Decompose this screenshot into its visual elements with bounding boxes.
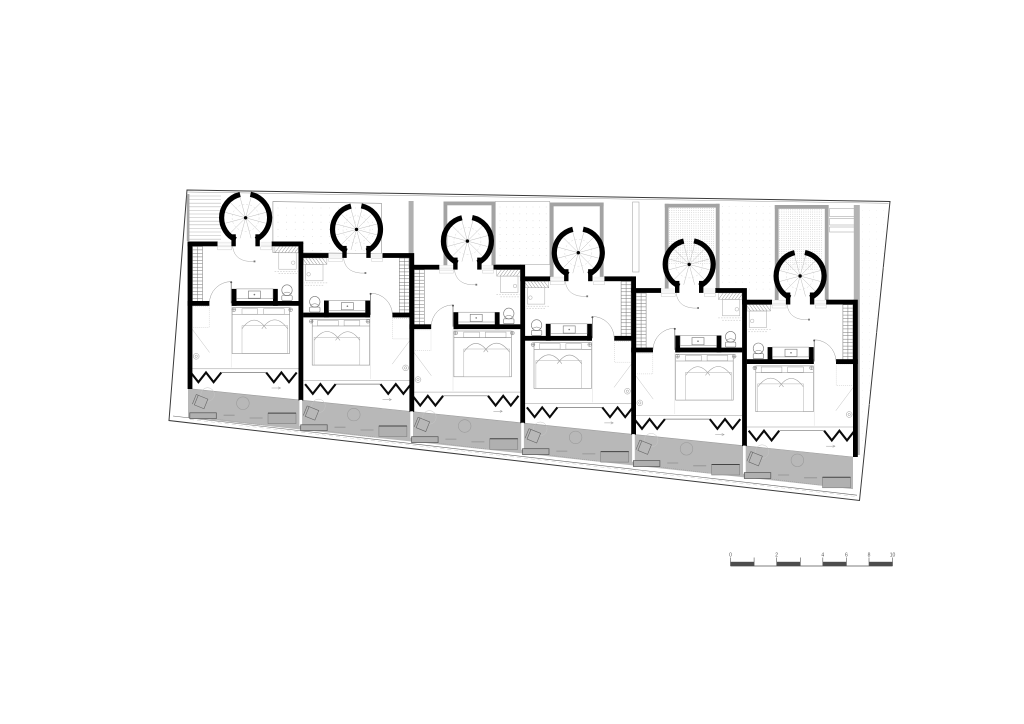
- svg-text:10: 10: [890, 553, 896, 559]
- svg-text:2: 2: [775, 553, 778, 559]
- svg-text:4: 4: [821, 553, 824, 559]
- svg-text:8: 8: [868, 553, 871, 559]
- svg-text:6: 6: [845, 553, 848, 559]
- svg-text:0: 0: [729, 553, 732, 559]
